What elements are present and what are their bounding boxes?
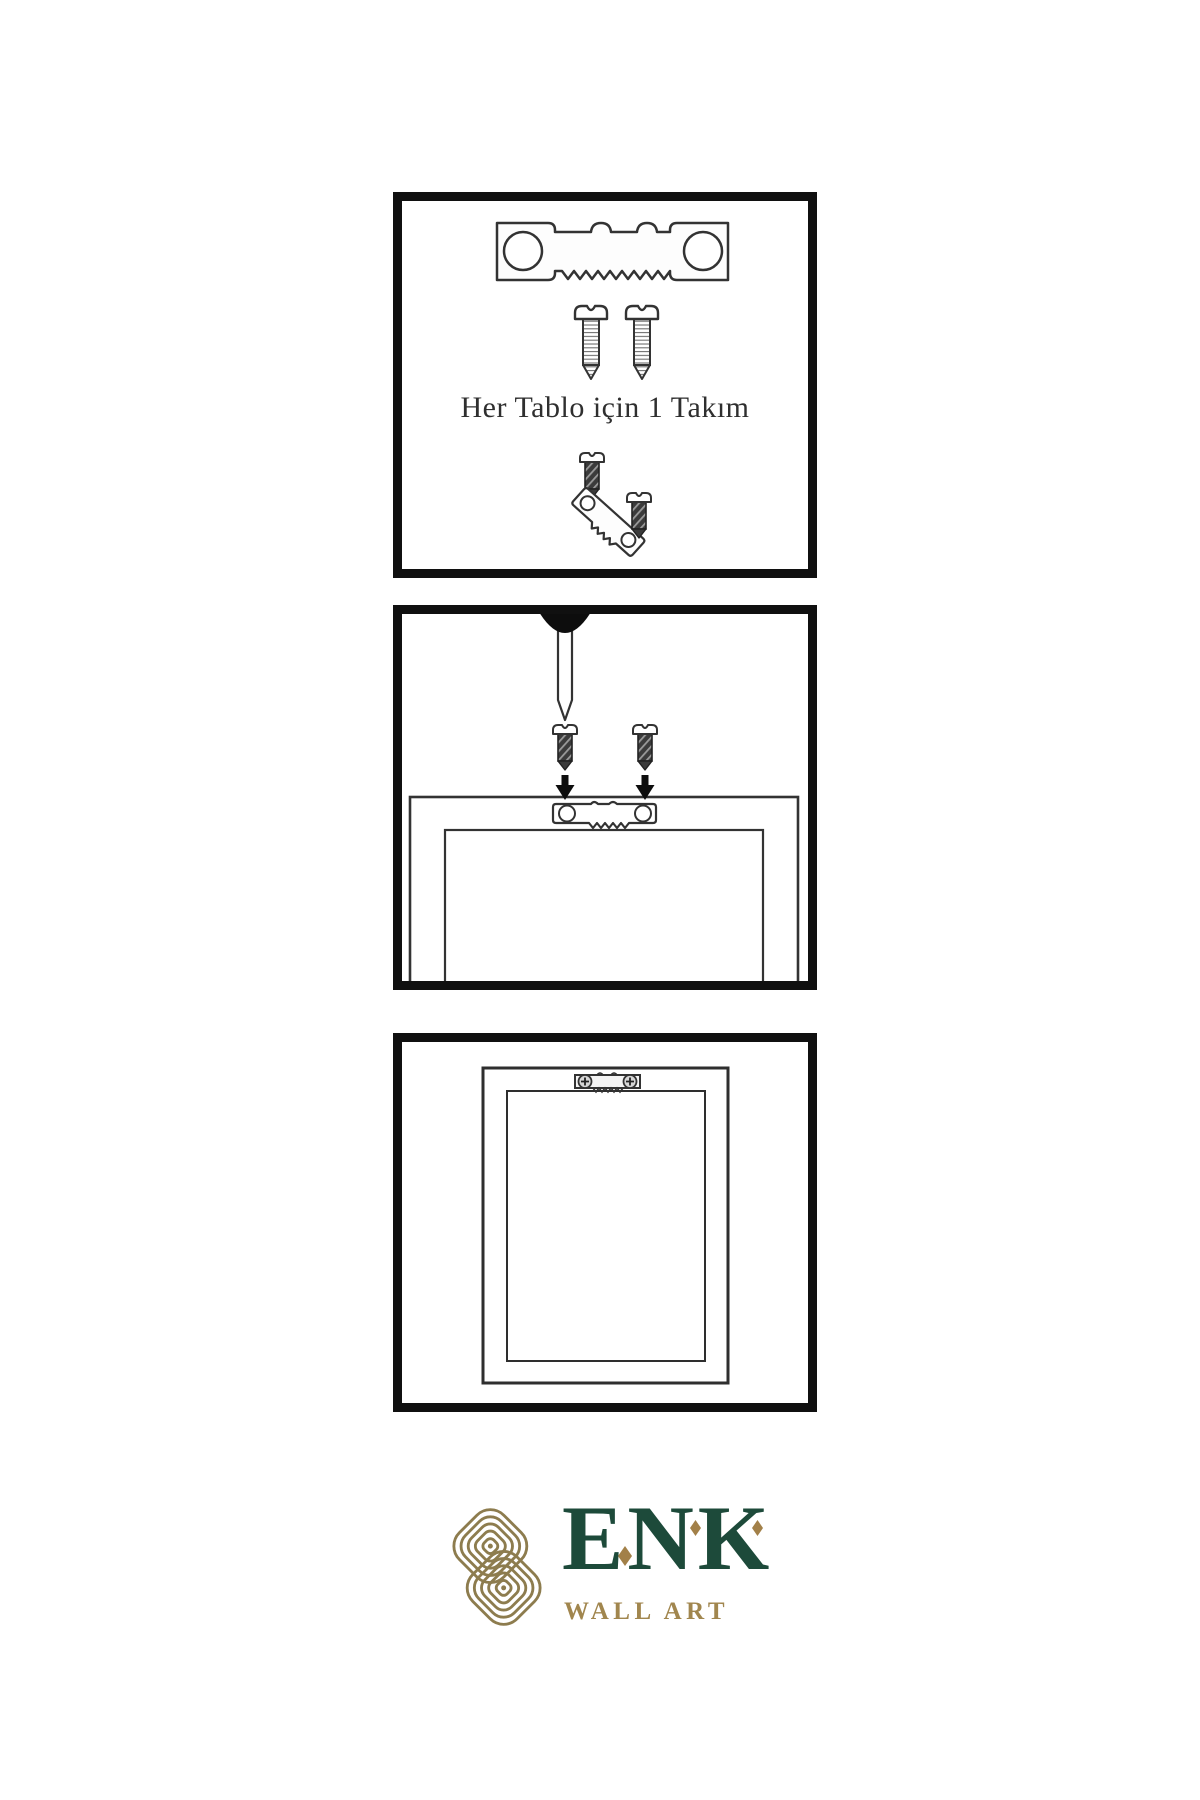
- panel-hung-frame: [393, 1033, 817, 1412]
- instruction-sheet: Her Tablo için 1 Takım: [0, 0, 1200, 1800]
- wall-nail-icon: [539, 614, 591, 720]
- tilted-hanger-demo: [568, 453, 651, 561]
- frame-outline: [483, 1068, 728, 1383]
- hardware-kit-illustration: [402, 201, 808, 569]
- brand-name: ENK: [562, 1488, 773, 1588]
- nailing-step-illustration: [402, 614, 808, 981]
- brand-logo: ENK WALL ART: [440, 1494, 780, 1644]
- brand-subtitle: WALL ART: [564, 1598, 729, 1626]
- dark-screw-icon: [633, 725, 657, 770]
- knot-logo-icon: [440, 1500, 554, 1634]
- panel-hardware-kit: Her Tablo için 1 Takım: [393, 192, 817, 578]
- sawtooth-hanger-icon: [553, 802, 656, 828]
- hung-frame-illustration: [402, 1042, 808, 1403]
- panel-nailing-step: [393, 605, 817, 990]
- screw-icon: [575, 306, 607, 379]
- sawtooth-hanger-icon: [497, 223, 728, 280]
- screw-icon: [626, 306, 658, 379]
- dark-screw-icon: [553, 725, 577, 770]
- kit-caption: Her Tablo için 1 Takım: [402, 391, 808, 425]
